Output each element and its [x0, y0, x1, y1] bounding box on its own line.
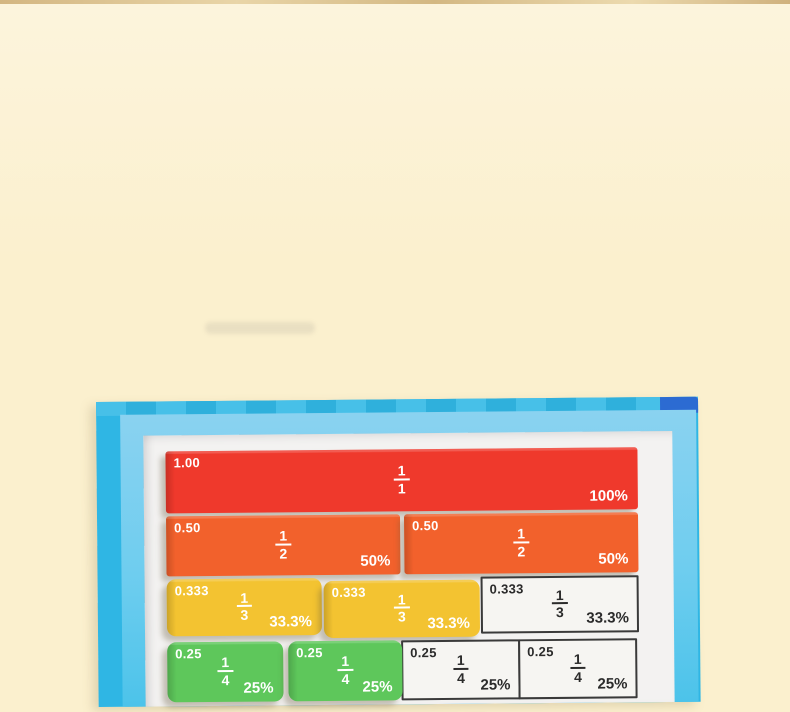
fraction-tile-one-whole: 1.00 1 1 100% [165, 447, 638, 513]
fraction-cell-printed-third: 0.333 1 3 33.3% [481, 575, 639, 633]
percent-label: 50% [360, 552, 390, 569]
fraction-numerator: 1 [394, 463, 410, 478]
decimal-label: 0.50 [412, 518, 439, 533]
fraction-tile-half: 0.50 1 2 50% [166, 514, 401, 576]
decimal-label: 0.25 [175, 646, 202, 661]
decimal-label: 0.333 [490, 581, 524, 596]
decimal-label: 1.00 [173, 455, 200, 470]
percent-label: 25% [362, 678, 392, 695]
fraction-denominator: 4 [337, 669, 353, 687]
fraction-numerator: 1 [337, 654, 353, 669]
fraction-denominator: 3 [552, 602, 568, 620]
fraction-label: 1 3 [552, 588, 568, 621]
fraction-denominator: 1 [394, 478, 410, 496]
fraction-tile-quarter: 0.25 1 4 25% [288, 640, 403, 701]
fraction-tile-third: 0.333 1 3 33.3% [167, 578, 322, 636]
decimal-label: 0.25 [410, 645, 437, 660]
fraction-denominator: 4 [453, 668, 469, 686]
fraction-numerator: 1 [394, 592, 410, 607]
percent-label: 25% [597, 675, 627, 692]
fraction-denominator: 2 [513, 541, 529, 559]
percent-label: 33.3% [586, 609, 629, 626]
fraction-denominator: 4 [570, 667, 586, 685]
faint-watermark-smudge [205, 322, 315, 334]
fraction-denominator: 4 [217, 670, 233, 688]
fraction-label: 1 3 [236, 590, 252, 623]
decimal-label: 0.50 [174, 520, 201, 535]
fraction-board: 1.00 1 1 100% 0.50 1 2 50% 0.50 1 2 50% [96, 397, 701, 707]
decimal-label: 0.25 [527, 644, 554, 659]
percent-label: 100% [589, 487, 628, 504]
background-sheen [0, 4, 790, 264]
fraction-denominator: 2 [275, 543, 291, 561]
fraction-numerator: 1 [513, 526, 529, 541]
fraction-numerator: 1 [552, 588, 568, 603]
percent-label: 25% [243, 679, 273, 696]
fraction-tiles-grid: 1.00 1 1 100% 0.50 1 2 50% 0.50 1 2 50% [165, 447, 639, 711]
fraction-tile-third: 0.333 1 3 33.3% [324, 580, 480, 638]
fraction-label: 1 3 [394, 592, 410, 625]
fraction-label: 1 4 [453, 653, 469, 686]
fraction-numerator: 1 [453, 653, 469, 668]
fraction-numerator: 1 [275, 528, 291, 543]
fraction-tile-quarter: 0.25 1 4 25% [167, 641, 284, 702]
fraction-label: 1 4 [337, 654, 353, 687]
percent-label: 50% [598, 550, 628, 567]
product-photo: { "photo": { "background_color": "#FBF0C… [0, 0, 790, 700]
percent-label: 33.3% [427, 615, 470, 632]
percent-label: 25% [480, 676, 510, 693]
percent-label: 33.3% [269, 613, 312, 630]
fraction-numerator: 1 [570, 652, 586, 667]
decimal-label: 0.25 [296, 645, 323, 660]
fraction-numerator: 1 [217, 655, 233, 670]
fraction-denominator: 3 [394, 607, 410, 625]
fraction-cell-printed-quarter: 0.25 1 4 25% [401, 639, 521, 700]
fraction-denominator: 3 [236, 605, 252, 623]
decimal-label: 0.333 [332, 585, 366, 600]
fraction-numerator: 1 [236, 590, 252, 605]
fraction-label: 1 4 [570, 652, 586, 685]
fraction-label: 1 2 [275, 528, 291, 561]
fraction-label: 1 4 [217, 655, 233, 688]
fraction-tile-half: 0.50 1 2 50% [404, 512, 639, 574]
fraction-label: 1 1 [394, 463, 410, 496]
fraction-label: 1 2 [513, 526, 529, 559]
decimal-label: 0.333 [175, 583, 209, 598]
fraction-cell-printed-quarter: 0.25 1 4 25% [518, 638, 638, 699]
